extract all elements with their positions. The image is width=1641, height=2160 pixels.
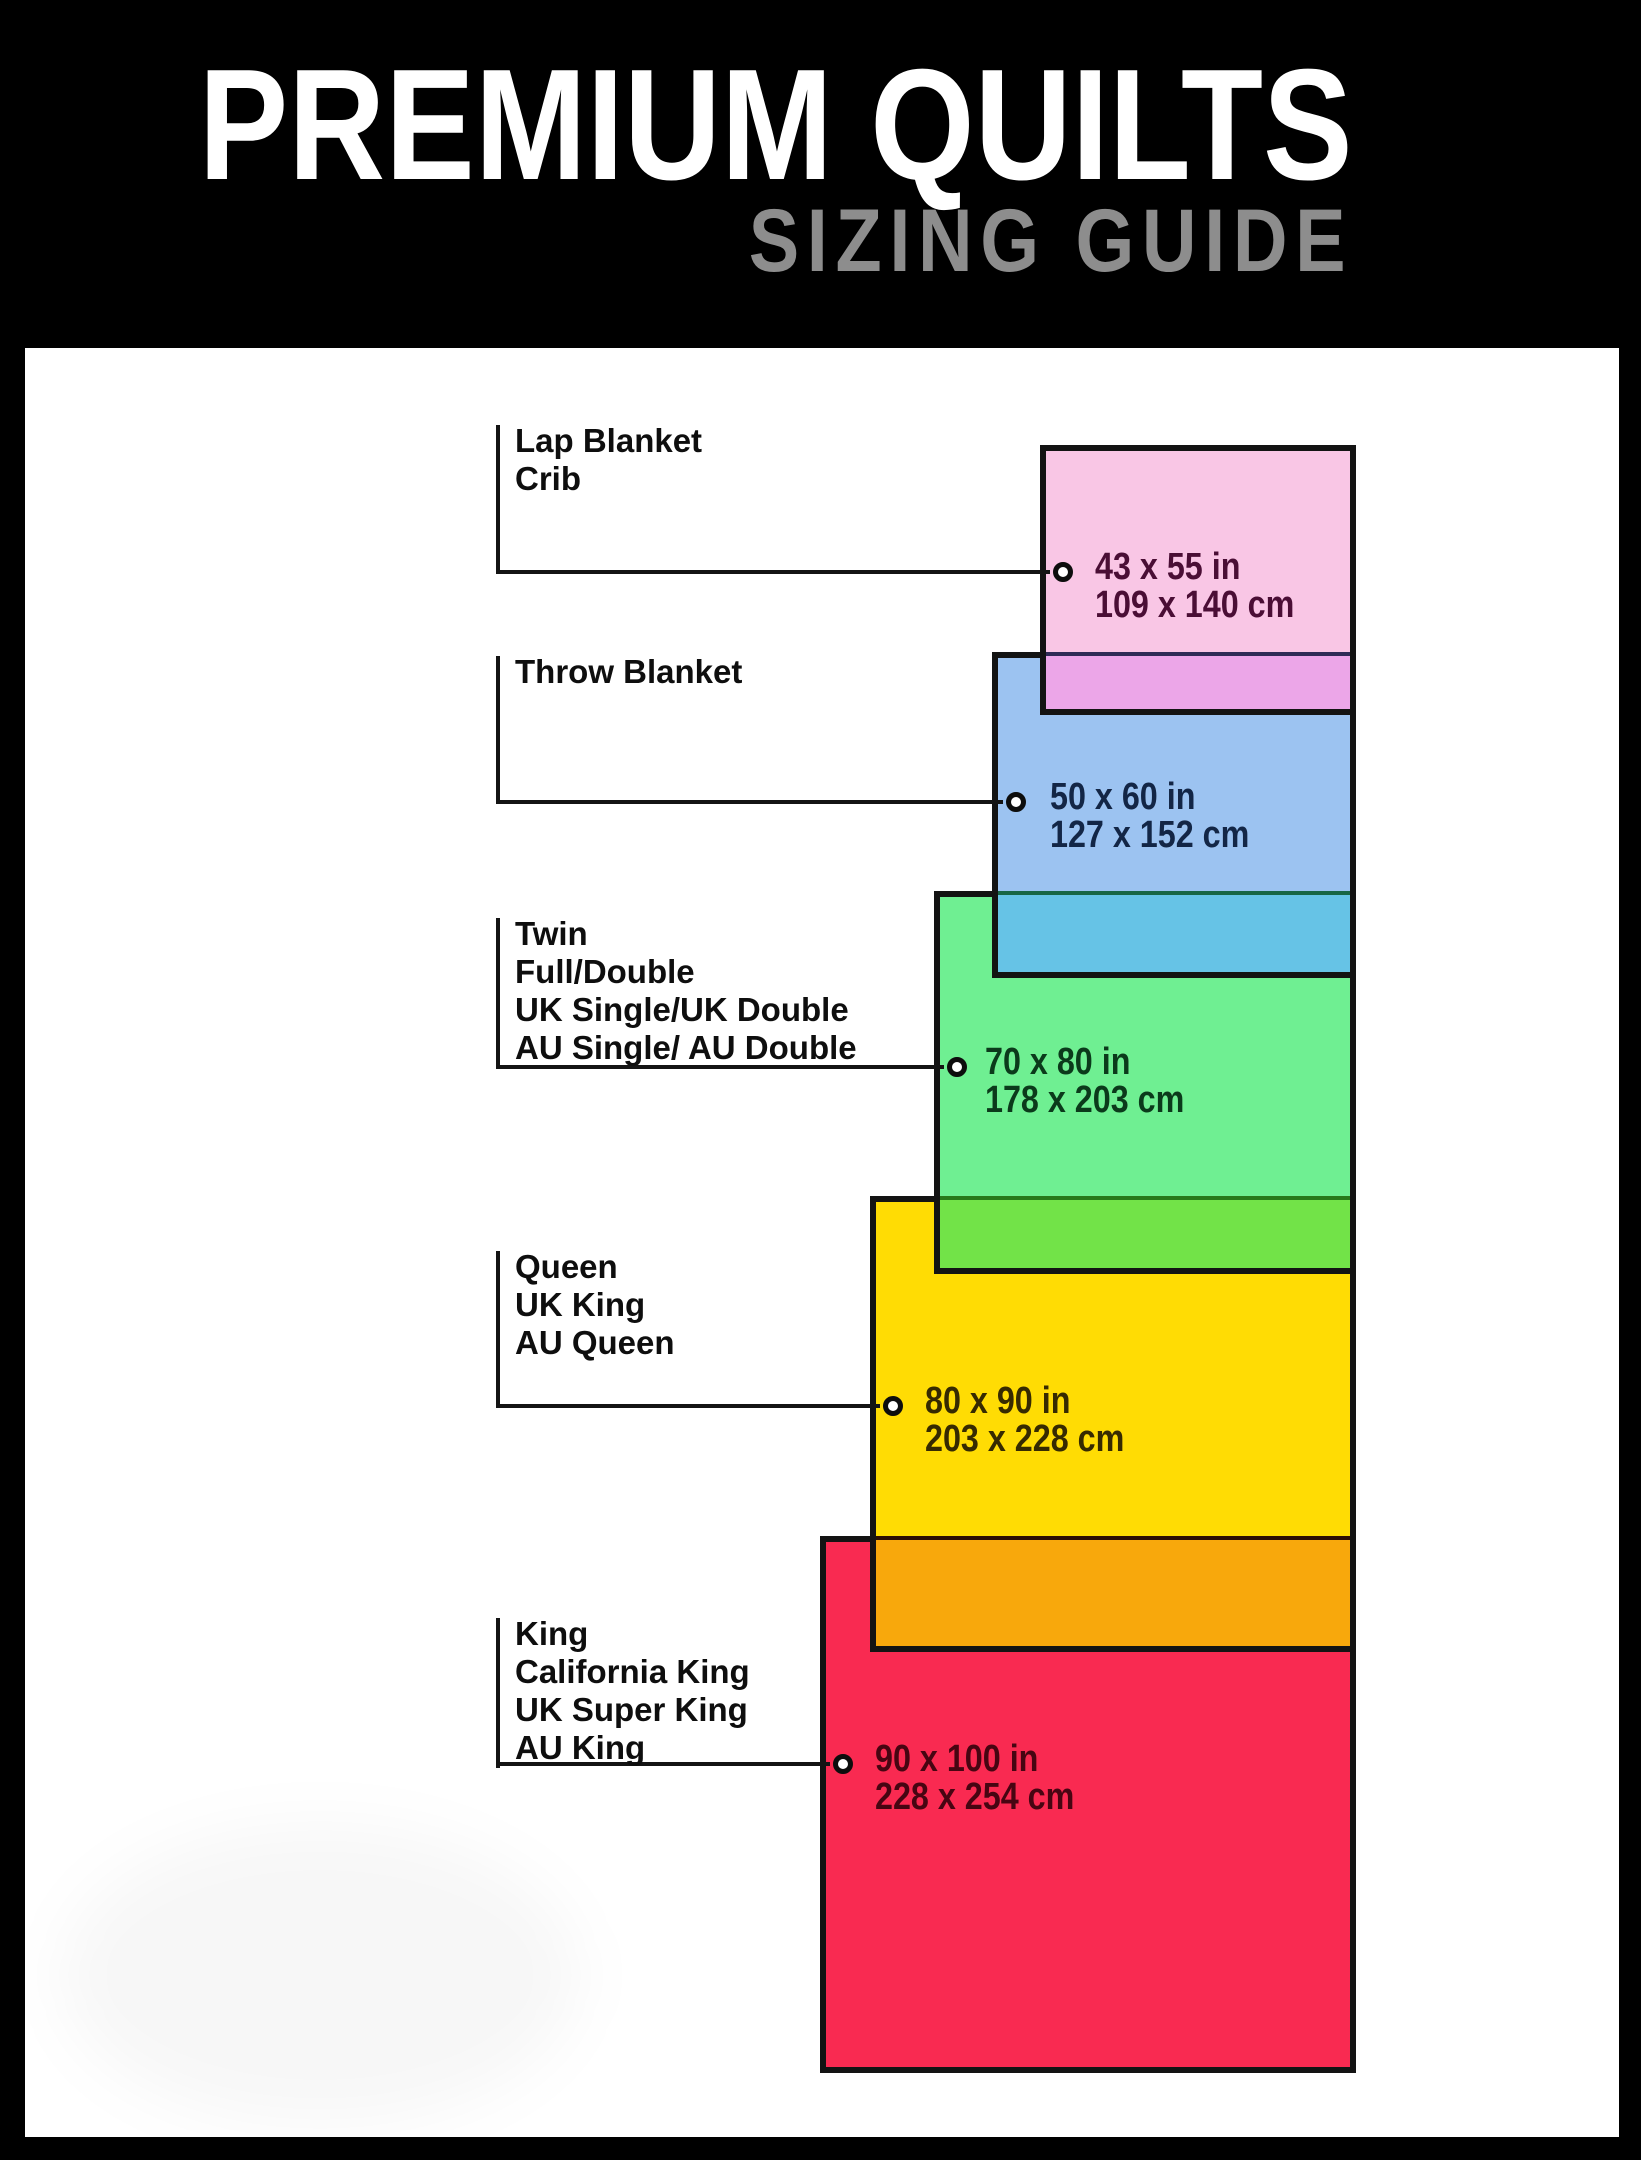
twin-full-overlap-strip — [940, 1196, 1350, 1268]
label-line: UK Super King — [515, 1691, 750, 1729]
king-dimensions: 90 x 100 in 228 x 254 cm — [875, 1740, 1074, 1816]
queen-overlap-strip — [876, 1536, 1350, 1646]
page-subtitle: SIZING GUIDE — [748, 196, 1353, 285]
lap-crib-marker-dot — [1053, 562, 1073, 582]
throw-labels: Throw Blanket — [515, 653, 742, 691]
throw-size-inches: 50 x 60 in — [1050, 778, 1249, 816]
throw-size-cm: 127 x 152 cm — [1050, 816, 1249, 854]
label-line: Crib — [515, 460, 702, 498]
header: PREMIUM QUILTS SIZING GUIDE — [0, 0, 1641, 348]
label-line: Queen — [515, 1248, 675, 1286]
lap-crib-size-inches: 43 x 55 in — [1095, 548, 1294, 586]
twin-full-dimensions: 70 x 80 in 178 x 203 cm — [985, 1043, 1184, 1119]
queen-size-inches: 80 x 90 in — [925, 1382, 1124, 1420]
label-line: Twin — [515, 915, 857, 953]
lap-crib-dimensions: 43 x 55 in 109 x 140 cm — [1095, 548, 1294, 624]
label-line: UK King — [515, 1286, 675, 1324]
label-line: AU Single/ AU Double — [515, 1029, 857, 1067]
background-shadow-blob — [60, 1825, 580, 2125]
label-line: UK Single/UK Double — [515, 991, 857, 1029]
lap-crib-overlap-strip — [1046, 652, 1350, 709]
twin-full-size-cm: 178 x 203 cm — [985, 1081, 1184, 1119]
queen-size-cm: 203 x 228 cm — [925, 1420, 1124, 1458]
twin-full-size-inches: 70 x 80 in — [985, 1043, 1184, 1081]
label-line: AU King — [515, 1729, 750, 1767]
queen-bracket-line — [496, 1251, 500, 1408]
king-marker-dot — [833, 1754, 853, 1774]
label-line: AU Queen — [515, 1324, 675, 1362]
throw-overlap-strip — [998, 891, 1350, 972]
throw-bracket-line — [496, 656, 500, 804]
lap-crib-bracket-line — [496, 425, 500, 574]
label-line: Lap Blanket — [515, 422, 702, 460]
throw-dimensions: 50 x 60 in 127 x 152 cm — [1050, 778, 1249, 854]
queen-marker-dot — [883, 1396, 903, 1416]
lap-crib-rectangle: 43 x 55 in 109 x 140 cm — [1040, 445, 1356, 715]
twin-full-bracket-line — [496, 918, 500, 1069]
label-line: Full/Double — [515, 953, 857, 991]
throw-leader-line — [496, 800, 1003, 804]
king-labels: King California King UK Super King AU Ki… — [515, 1615, 750, 1767]
queen-leader-line — [496, 1404, 880, 1408]
twin-full-marker-dot — [947, 1057, 967, 1077]
king-size-inches: 90 x 100 in — [875, 1740, 1074, 1778]
throw-marker-dot — [1006, 792, 1026, 812]
label-line: King — [515, 1615, 750, 1653]
twin-full-labels: Twin Full/Double UK Single/UK Double AU … — [515, 915, 857, 1067]
queen-labels: Queen UK King AU Queen — [515, 1248, 675, 1362]
label-line: Throw Blanket — [515, 653, 742, 691]
king-size-cm: 228 x 254 cm — [875, 1778, 1074, 1816]
lap-crib-leader-line — [496, 570, 1050, 574]
queen-dimensions: 80 x 90 in 203 x 228 cm — [925, 1382, 1124, 1458]
king-bracket-line — [496, 1618, 500, 1768]
page-title: PREMIUM QUILTS — [199, 46, 1353, 204]
lap-crib-size-cm: 109 x 140 cm — [1095, 586, 1294, 624]
lap-crib-labels: Lap Blanket Crib — [515, 422, 702, 498]
label-line: California King — [515, 1653, 750, 1691]
